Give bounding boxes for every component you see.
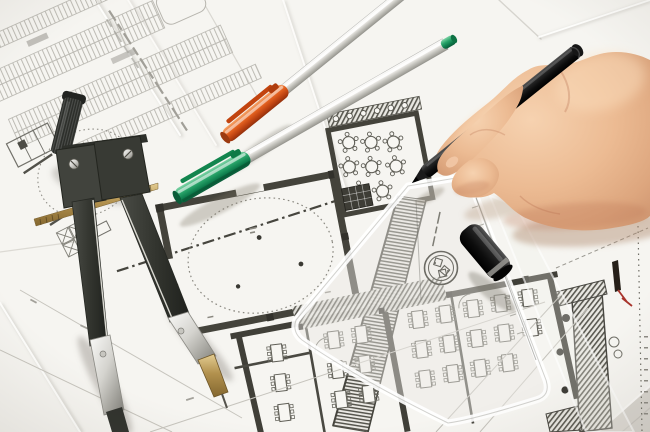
vignette-overlay [0, 0, 650, 432]
architect-desk-photo [0, 0, 650, 432]
photo-canvas [0, 0, 650, 432]
